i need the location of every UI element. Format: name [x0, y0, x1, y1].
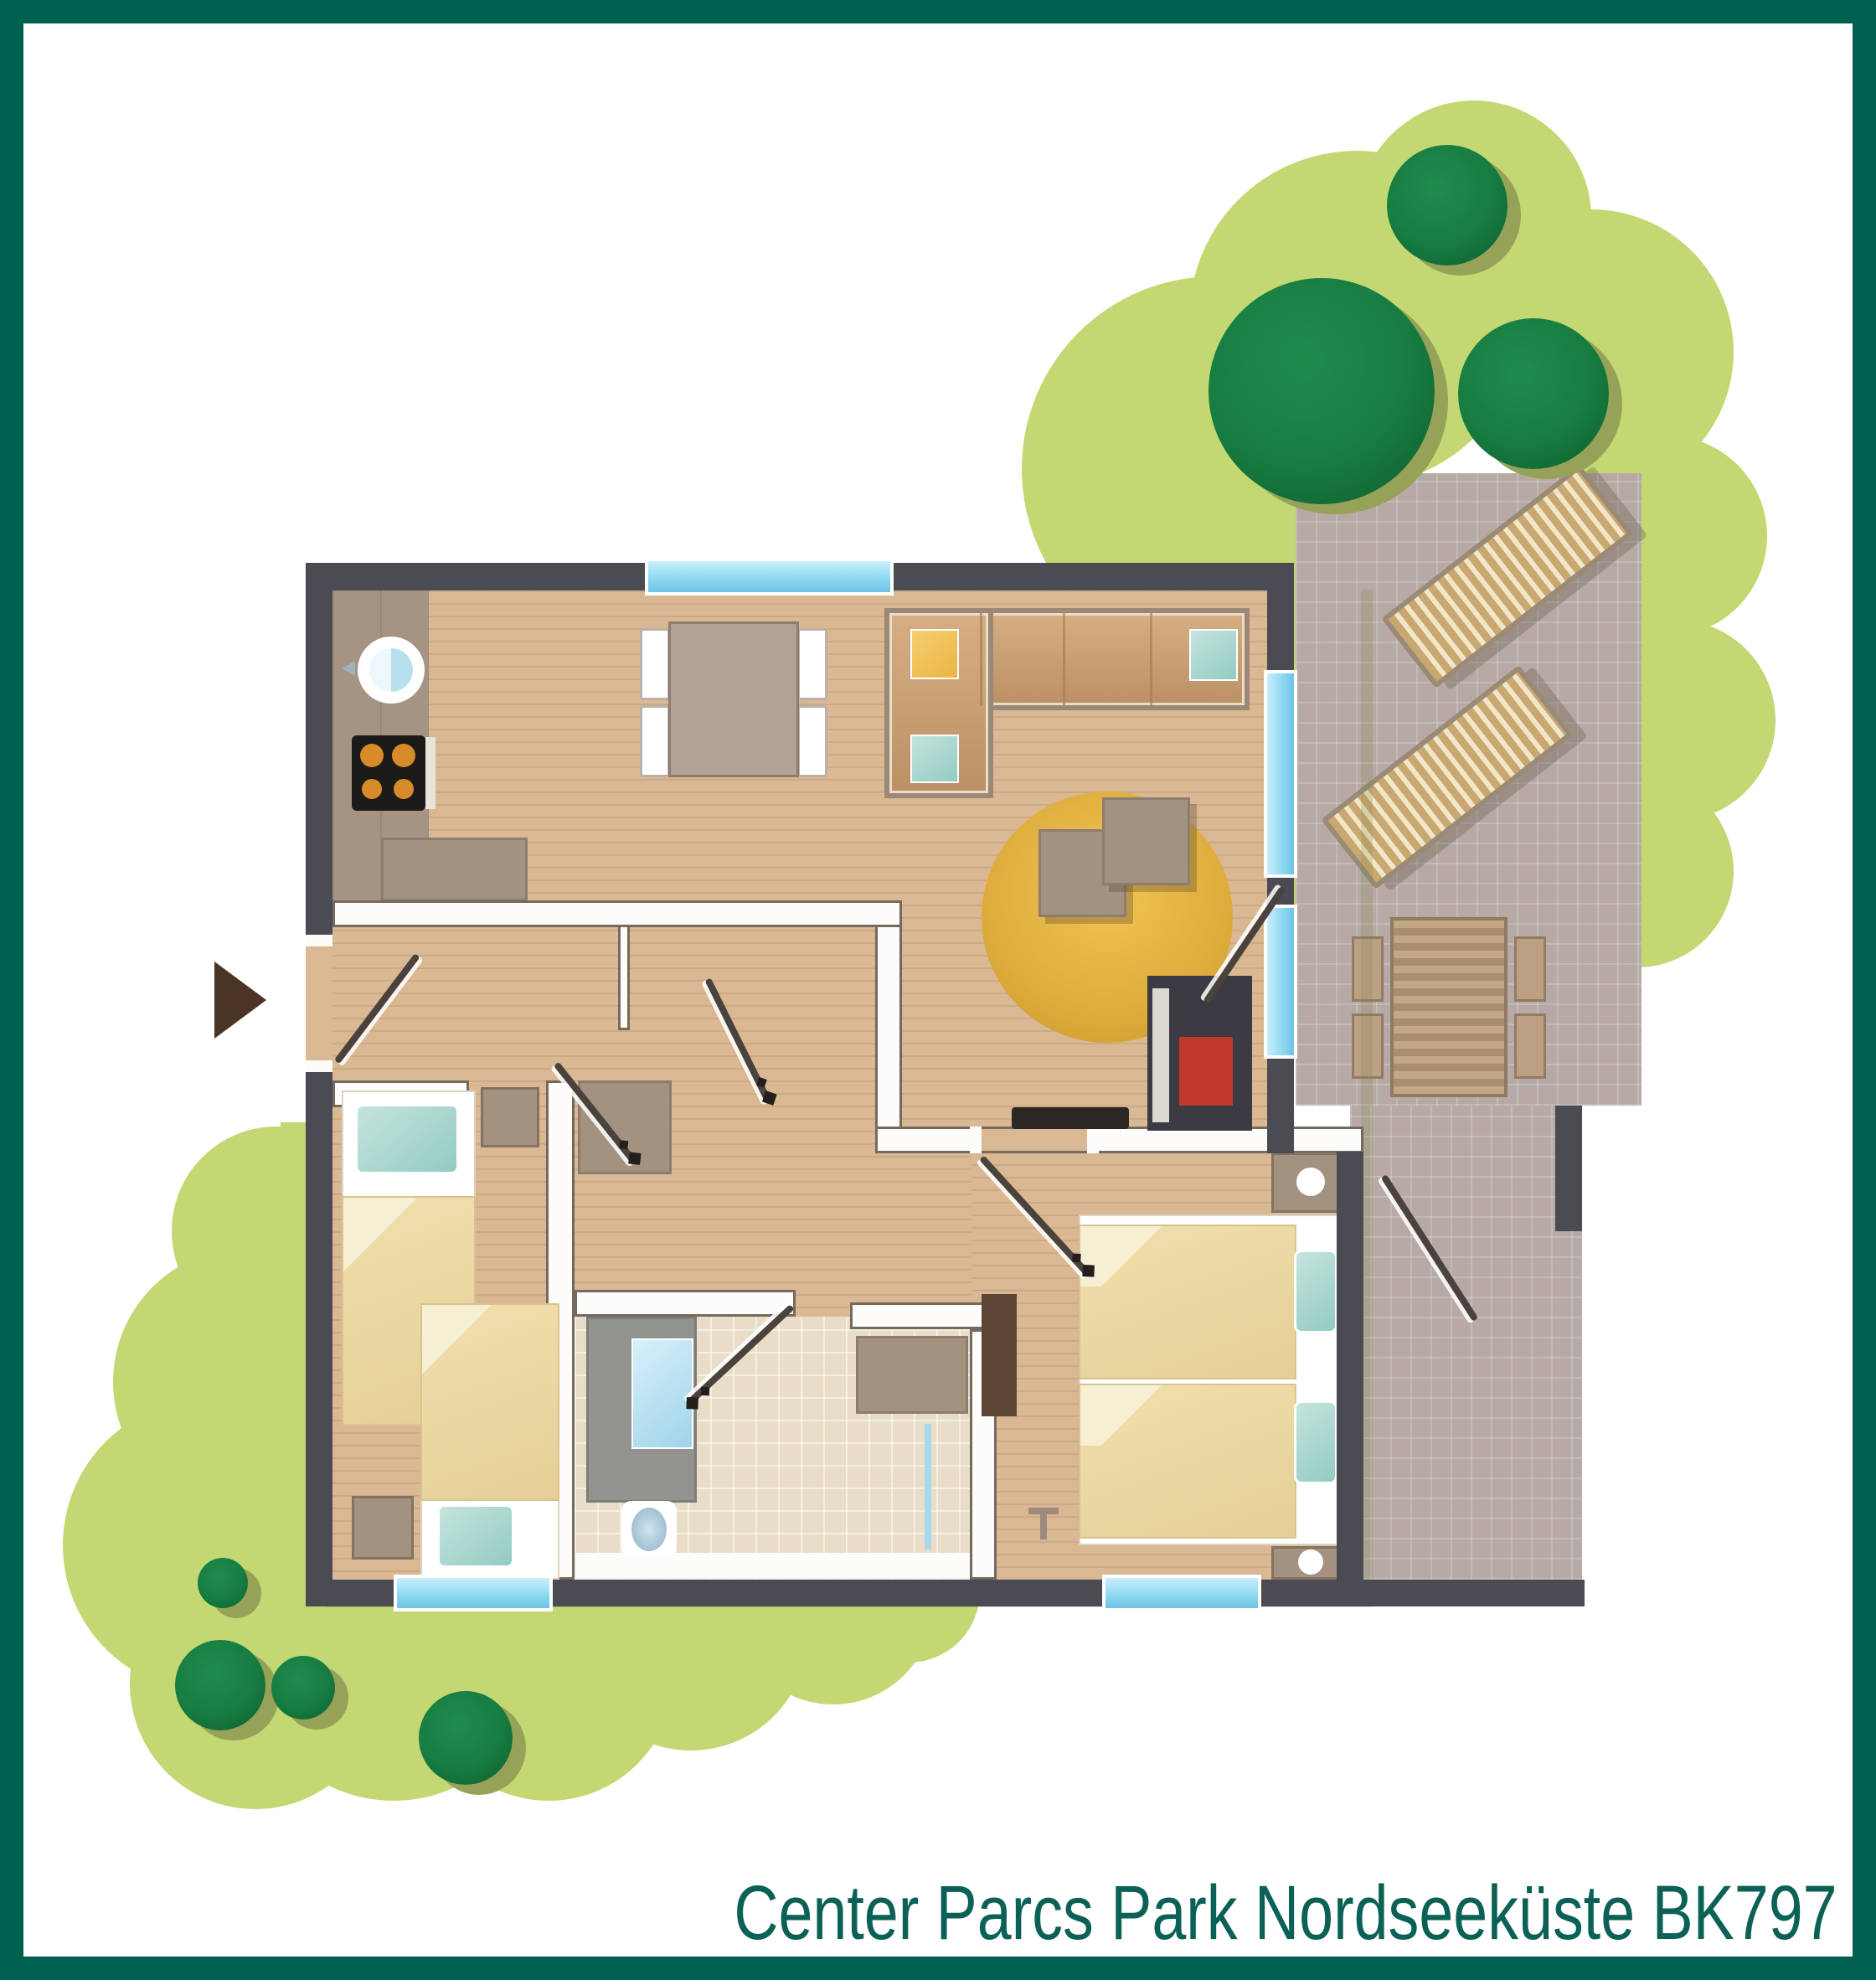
hall-cupboard: [578, 1080, 672, 1174]
tree: [198, 1558, 248, 1608]
picnic-table: [1390, 917, 1507, 1097]
sofa-cushion-teal: [910, 735, 959, 783]
lamp-icon: [1298, 1549, 1323, 1575]
nightstand: [352, 1496, 414, 1560]
wall-bedroom-right: [1337, 1152, 1363, 1606]
picnic-bench: [1514, 936, 1546, 1002]
window: [645, 558, 894, 596]
wall-stub: [618, 925, 630, 1030]
tree: [271, 1656, 335, 1720]
window: [394, 1575, 553, 1611]
sofa-seam: [1150, 613, 1152, 705]
dining-table: [668, 621, 799, 777]
toilet-bowl: [631, 1508, 667, 1551]
coffee-table: [1102, 797, 1190, 885]
tree: [419, 1691, 513, 1785]
front-door-gap: [306, 946, 332, 1060]
tv: [1012, 1107, 1129, 1129]
dining-chair: [797, 628, 827, 700]
bed-pillow: [437, 1504, 514, 1568]
sofa-seam: [1063, 613, 1065, 705]
tree: [1458, 318, 1609, 469]
window: [1264, 905, 1297, 1059]
fireplace-side: [1152, 988, 1169, 1122]
door-jamb: [306, 935, 332, 946]
wardrobe-tall: [982, 1294, 1017, 1416]
window-sill: [576, 1553, 970, 1578]
sofa-cushion-teal: [1189, 629, 1238, 681]
tree: [1387, 145, 1507, 266]
page-title: Center Parcs Park Nordseeküste BK797: [734, 1869, 1837, 1957]
lamp-icon: [1296, 1168, 1325, 1196]
wall-jog: [875, 925, 902, 1153]
shower-glass: [631, 1338, 693, 1449]
shower-rail: [925, 1424, 931, 1549]
floorplan-canvas: Center Parcs Park Nordseeküste BK797: [0, 0, 1876, 1980]
entry-arrow-icon: [214, 962, 266, 1039]
sink-tap-icon: [342, 661, 355, 676]
door-gap: [982, 1129, 1087, 1151]
bed-duvet: [1079, 1225, 1296, 1379]
tree: [175, 1640, 265, 1730]
fireplace-door: [1179, 1037, 1233, 1106]
wall-left: [306, 563, 332, 1606]
bath-bench: [856, 1336, 968, 1414]
sofa-seam: [980, 613, 982, 705]
tree: [1209, 278, 1435, 504]
bed-duvet: [1079, 1384, 1296, 1539]
bed-duvet: [420, 1303, 559, 1501]
door-jamb: [970, 1127, 982, 1153]
dining-chair: [640, 705, 670, 777]
stove-burner: [394, 779, 414, 799]
window: [1102, 1575, 1261, 1611]
stove-burner: [360, 744, 384, 767]
picnic-bench: [1514, 1013, 1546, 1079]
wall-kitchen-hall: [332, 900, 902, 927]
window: [1264, 670, 1297, 878]
bed-pillow: [1294, 1400, 1337, 1484]
stove-burner: [392, 744, 415, 767]
bath-stool-icon: [1040, 1508, 1047, 1539]
hall-cupboard: [381, 838, 528, 901]
door-jamb: [306, 1060, 332, 1072]
oven-handle: [425, 737, 435, 809]
wall-bath-top: [575, 1290, 796, 1317]
door-jamb: [1087, 1127, 1099, 1153]
kitchen-sink-bowl: [369, 648, 413, 692]
terrace-wall-stub: [1555, 1106, 1582, 1231]
stove-burner: [362, 779, 382, 799]
sofa-cushion-yellow: [910, 629, 959, 679]
nightstand: [481, 1087, 539, 1147]
bed-pillow: [1294, 1250, 1337, 1333]
wall-bath-nook: [850, 1302, 998, 1329]
bed-pillow: [355, 1104, 459, 1174]
dining-chair: [797, 705, 827, 777]
dining-chair: [640, 628, 670, 700]
